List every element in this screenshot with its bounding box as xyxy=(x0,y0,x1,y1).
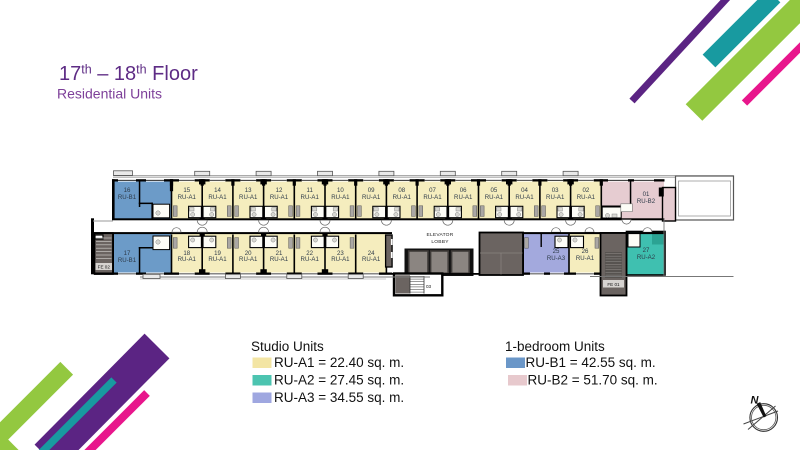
svg-text:RU-A1 = 22.40 sq. m.: RU-A1 = 22.40 sq. m. xyxy=(274,355,404,370)
svg-text:25: 25 xyxy=(553,248,560,255)
svg-text:RU-A1: RU-A1 xyxy=(546,194,565,201)
svg-text:10: 10 xyxy=(337,187,344,194)
svg-text:RU-A1: RU-A1 xyxy=(239,194,258,201)
svg-text:RU-B2: RU-B2 xyxy=(637,198,656,205)
svg-text:RU-A1: RU-A1 xyxy=(178,194,197,201)
svg-text:27: 27 xyxy=(643,247,650,254)
svg-text:RU-A1: RU-A1 xyxy=(239,256,258,263)
svg-text:RU-A1: RU-A1 xyxy=(515,194,534,201)
svg-text:RU-B1: RU-B1 xyxy=(118,257,137,264)
svg-text:RU-A1: RU-A1 xyxy=(454,194,473,201)
svg-text:15: 15 xyxy=(183,187,190,194)
svg-text:RU-A1: RU-A1 xyxy=(423,194,442,201)
svg-text:RU-A1: RU-A1 xyxy=(301,194,320,201)
svg-text:ELEVATOR: ELEVATOR xyxy=(427,232,454,238)
svg-text:N: N xyxy=(751,395,760,407)
svg-text:RU-A2: RU-A2 xyxy=(637,254,656,261)
svg-text:RU-A1: RU-A1 xyxy=(362,194,381,201)
svg-text:RU-A3 = 34.55 sq. m.: RU-A3 = 34.55 sq. m. xyxy=(274,390,404,405)
svg-text:13: 13 xyxy=(245,187,252,194)
svg-text:RU-A1: RU-A1 xyxy=(331,194,350,201)
svg-text:RU-A1: RU-A1 xyxy=(178,256,197,263)
svg-text:FE 02: FE 02 xyxy=(98,265,111,270)
svg-text:RU-A1: RU-A1 xyxy=(362,256,381,263)
svg-text:RU-A1: RU-A1 xyxy=(270,194,289,201)
svg-text:RU-A1: RU-A1 xyxy=(301,256,320,263)
svg-text:03: 03 xyxy=(552,187,559,194)
svg-text:RU-A1: RU-A1 xyxy=(485,194,504,201)
svg-text:06: 06 xyxy=(460,187,467,194)
svg-text:RU-A2 = 27.45 sq. m.: RU-A2 = 27.45 sq. m. xyxy=(274,373,404,388)
svg-text:14: 14 xyxy=(214,187,221,194)
svg-text:05: 05 xyxy=(491,187,498,194)
svg-text:03: 03 xyxy=(426,284,432,289)
svg-text:RU-A1: RU-A1 xyxy=(331,256,350,263)
svg-text:RU-A1: RU-A1 xyxy=(208,256,227,263)
svg-text:RU-A3: RU-A3 xyxy=(547,255,566,262)
svg-text:16: 16 xyxy=(124,187,131,194)
svg-text:01: 01 xyxy=(643,191,650,198)
svg-text:RU-A1: RU-A1 xyxy=(270,256,289,263)
svg-text:08: 08 xyxy=(398,187,405,194)
svg-text:RU-A1: RU-A1 xyxy=(576,255,595,262)
svg-text:26: 26 xyxy=(582,248,589,255)
svg-text:17th – 18th Floor: 17th – 18th Floor xyxy=(59,63,198,86)
svg-text:09: 09 xyxy=(368,187,375,194)
svg-text:LOBBY: LOBBY xyxy=(431,239,449,245)
svg-text:12: 12 xyxy=(276,187,283,194)
svg-text:07: 07 xyxy=(429,187,436,194)
svg-text:RU-A1: RU-A1 xyxy=(393,194,412,201)
svg-text:RU-A1: RU-A1 xyxy=(577,194,596,201)
svg-text:RU-B1: RU-B1 xyxy=(118,194,137,201)
svg-text:04: 04 xyxy=(521,187,528,194)
svg-text:17: 17 xyxy=(124,250,131,257)
svg-text:1-bedroom Units: 1-bedroom Units xyxy=(505,339,605,354)
svg-text:11: 11 xyxy=(307,187,314,194)
svg-text:Studio Units: Studio Units xyxy=(251,339,324,354)
svg-text:Residential Units: Residential Units xyxy=(57,86,162,102)
svg-text:RU-B2 = 51.70 sq. m.: RU-B2 = 51.70 sq. m. xyxy=(528,373,658,388)
svg-text:RU-A1: RU-A1 xyxy=(208,194,227,201)
svg-text:02: 02 xyxy=(583,187,590,194)
svg-text:FE 01: FE 01 xyxy=(607,282,620,287)
svg-text:RU-B1 = 42.55 sq. m.: RU-B1 = 42.55 sq. m. xyxy=(526,355,656,370)
